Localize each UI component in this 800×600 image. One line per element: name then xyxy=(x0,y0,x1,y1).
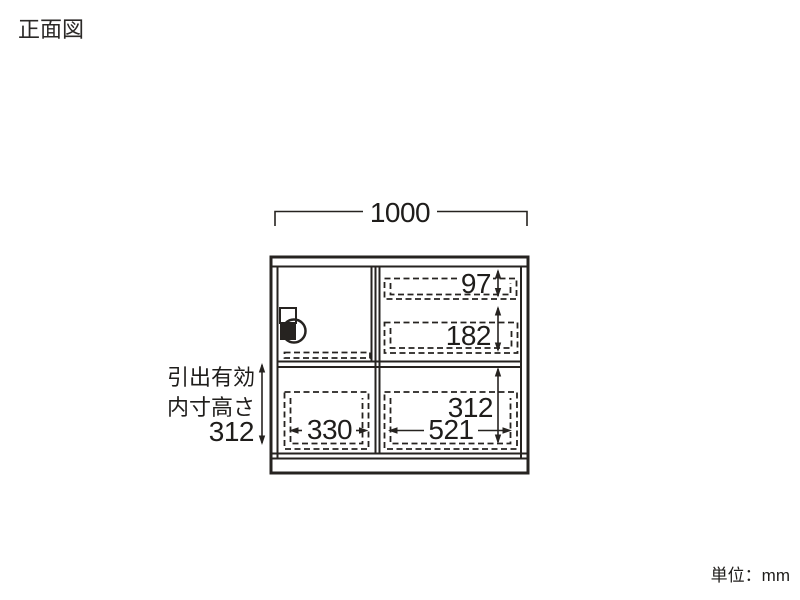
door-lock-icon xyxy=(280,308,306,343)
drawer-182-height-value: 182 xyxy=(446,320,491,351)
overall-width-value: 1000 xyxy=(370,197,430,228)
drawer-182-height-arrow xyxy=(495,306,501,352)
diagram-canvas: 正面図 1000 97 182 312 330 521 引出有効 内寸高さ 31… xyxy=(0,0,800,600)
door-shelf-dashed xyxy=(285,353,371,359)
drawer-97-height-value: 97 xyxy=(461,268,491,299)
bottom-drawer-height-arrow xyxy=(495,367,501,444)
left-label-line1: 引出有効 xyxy=(167,365,255,390)
page-title: 正面図 xyxy=(18,17,84,42)
unit-label: 単位：mm xyxy=(711,566,790,585)
left-label-value: 312 xyxy=(209,416,254,447)
drawer-330-width-value: 330 xyxy=(307,414,352,445)
front-view-diagram: 正面図 1000 97 182 312 330 521 引出有効 内寸高さ 31… xyxy=(0,0,800,600)
drawer-97-height-arrow xyxy=(495,269,501,298)
drawer-521-width-value: 521 xyxy=(428,414,473,445)
left-inner-height-arrow xyxy=(259,363,265,445)
